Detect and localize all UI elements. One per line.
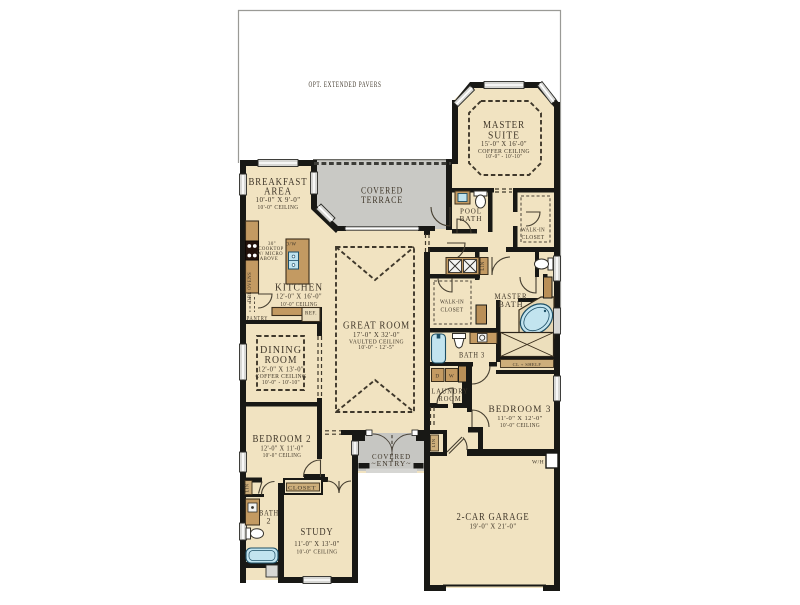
- svg-text:PANTRY: PANTRY: [247, 315, 269, 322]
- svg-text:10'-0" - 10'-10": 10'-0" - 10'-10": [262, 380, 300, 386]
- svg-text:11'-0" X 13'-0": 11'-0" X 13'-0": [294, 540, 340, 548]
- svg-text:19'-0" X 21'-0": 19'-0" X 21'-0": [470, 523, 517, 531]
- svg-text:LIN: LIN: [245, 483, 250, 492]
- svg-text:10'-0" CEILING: 10'-0" CEILING: [297, 549, 338, 556]
- svg-text:W: W: [449, 374, 454, 380]
- svg-text:ABOVE: ABOVE: [260, 257, 279, 262]
- svg-text:MASTER: MASTER: [483, 120, 525, 131]
- svg-text:STUDY: STUDY: [301, 527, 334, 538]
- svg-text:TERRACE: TERRACE: [361, 196, 403, 206]
- svg-text:CLOSET: CLOSET: [288, 486, 316, 492]
- svg-text:W/H: W/H: [532, 460, 544, 466]
- svg-text:WALK-IN: WALK-IN: [440, 299, 464, 306]
- svg-text:BATH 3: BATH 3: [459, 351, 485, 360]
- svg-text:WALK-IN: WALK-IN: [521, 227, 545, 234]
- svg-text:10'-0" - 12'-5": 10'-0" - 12'-5": [358, 345, 395, 351]
- svg-text:2: 2: [267, 517, 272, 526]
- svg-text:COVERED: COVERED: [361, 187, 403, 197]
- svg-text:BATH: BATH: [460, 214, 483, 223]
- svg-text:LIN: LIN: [481, 261, 486, 270]
- svg-text:D: D: [435, 374, 439, 380]
- svg-text:10'-0" X 9'-0": 10'-0" X 9'-0": [256, 196, 301, 204]
- svg-text:REF.: REF.: [305, 311, 317, 317]
- svg-text:GREAT ROOM: GREAT ROOM: [343, 321, 410, 332]
- svg-text:BEDROOM 2: BEDROOM 2: [253, 434, 312, 445]
- svg-text:CLOSET: CLOSET: [441, 307, 464, 314]
- svg-text:D/W: D/W: [286, 243, 297, 248]
- svg-text:LIN: LIN: [431, 438, 436, 447]
- svg-text:10'-0" CEILING: 10'-0" CEILING: [281, 301, 318, 308]
- svg-text:10'-0" CEILING: 10'-0" CEILING: [500, 423, 540, 429]
- svg-text:OPT. EXTENDED PAVERS: OPT. EXTENDED PAVERS: [309, 80, 382, 89]
- svg-text:~ENTRY~: ~ENTRY~: [372, 459, 412, 468]
- svg-text:BEDROOM 3: BEDROOM 3: [489, 404, 552, 414]
- svg-text:11'-0" X 12'-0": 11'-0" X 12'-0": [497, 415, 542, 422]
- svg-text:10'-0" CEILING: 10'-0" CEILING: [258, 204, 299, 211]
- svg-text:15'-0" X 16'-0": 15'-0" X 16'-0": [481, 140, 527, 148]
- svg-text:2-CAR GARAGE: 2-CAR GARAGE: [457, 512, 530, 523]
- svg-text:10'-0" - 10'-10": 10'-0" - 10'-10": [486, 154, 523, 160]
- svg-text:CLOSET: CLOSET: [522, 234, 545, 241]
- svg-text:DBL OVENS: DBL OVENS: [248, 272, 253, 302]
- svg-text:BATH: BATH: [499, 300, 524, 309]
- svg-text:ROOM: ROOM: [439, 394, 462, 403]
- svg-text:CL + SHELF: CL + SHELF: [513, 362, 542, 367]
- svg-text:COFFER CEILING: COFFER CEILING: [256, 373, 307, 380]
- svg-text:ROOM: ROOM: [265, 355, 298, 366]
- svg-text:12'-0" X 16'-0": 12'-0" X 16'-0": [276, 293, 322, 301]
- svg-text:10'-0" CEILING: 10'-0" CEILING: [263, 452, 302, 459]
